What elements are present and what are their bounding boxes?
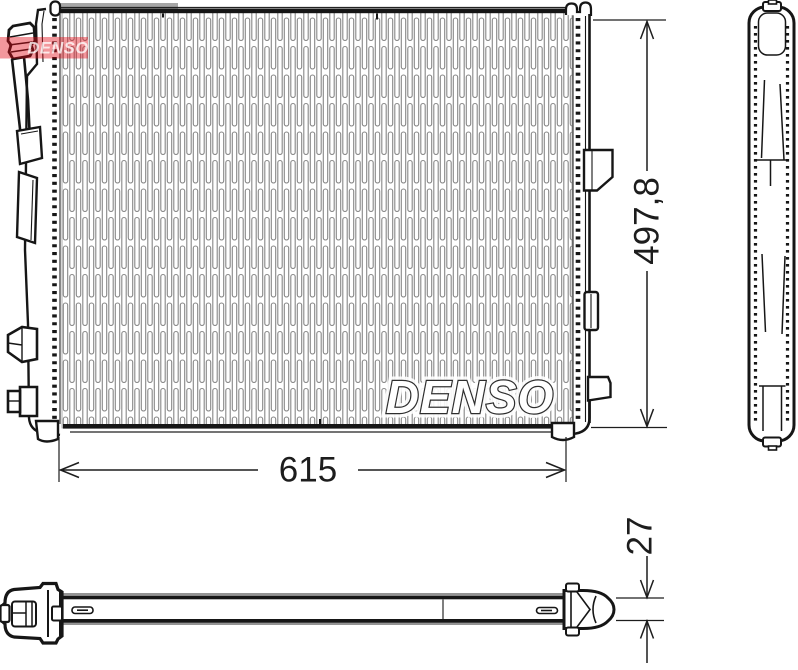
depth-ext-lines [616,598,664,621]
corner-logo-watermark: DENSO [0,37,89,59]
right-bracket-tab [584,150,613,191]
width-dim-label: 615 [279,451,337,490]
left-bottom-foot [36,421,58,442]
dimension-height: 497,8 [591,20,667,428]
corner-logo-text: DENSO [27,40,88,58]
brand-watermark-text: DENSO [386,371,555,423]
side-top-nub [769,0,777,4]
dimension-width: 615 [59,437,566,490]
bottom-bar-top-edge [62,596,564,600]
height-dim-label: 497,8 [628,177,667,265]
right-connector-bottom-tab [566,628,579,636]
left-connector-notch [52,607,62,621]
side-view [749,0,794,450]
core-fin-pattern [62,12,572,428]
bottom-left-connector [1,584,63,644]
left-connector-knob [1,605,10,622]
top-tank-bar [60,9,567,14]
mounting-bracket-lower [17,172,37,243]
right-connector-top-tab [566,584,579,592]
bottom-bar-bottom-edge [62,619,564,623]
side-bottom-cap [763,438,781,447]
right-top-tabs [566,3,591,17]
right-lower-bracket [588,377,611,401]
side-bottom-nub [769,446,777,450]
depth-dim-label: 27 [621,517,660,556]
bottom-view [1,584,615,644]
technical-drawing-canvas: DENSO DENSO DENSO [0,0,798,670]
right-bottom-foot [552,423,574,440]
radiator-technical-drawing-page: { "drawing": { "watermark": "DENSO", "co… [0,0,798,670]
bottom-right-connector [564,584,614,636]
bottom-tank-bar [63,424,568,429]
brand-watermark: DENSO DENSO [386,371,555,423]
dimension-depth: 27 [616,517,664,663]
front-view: DENSO DENSO DENSO [0,2,613,442]
outlet-stub-body [20,387,37,416]
top-mounting-pin [51,2,61,16]
